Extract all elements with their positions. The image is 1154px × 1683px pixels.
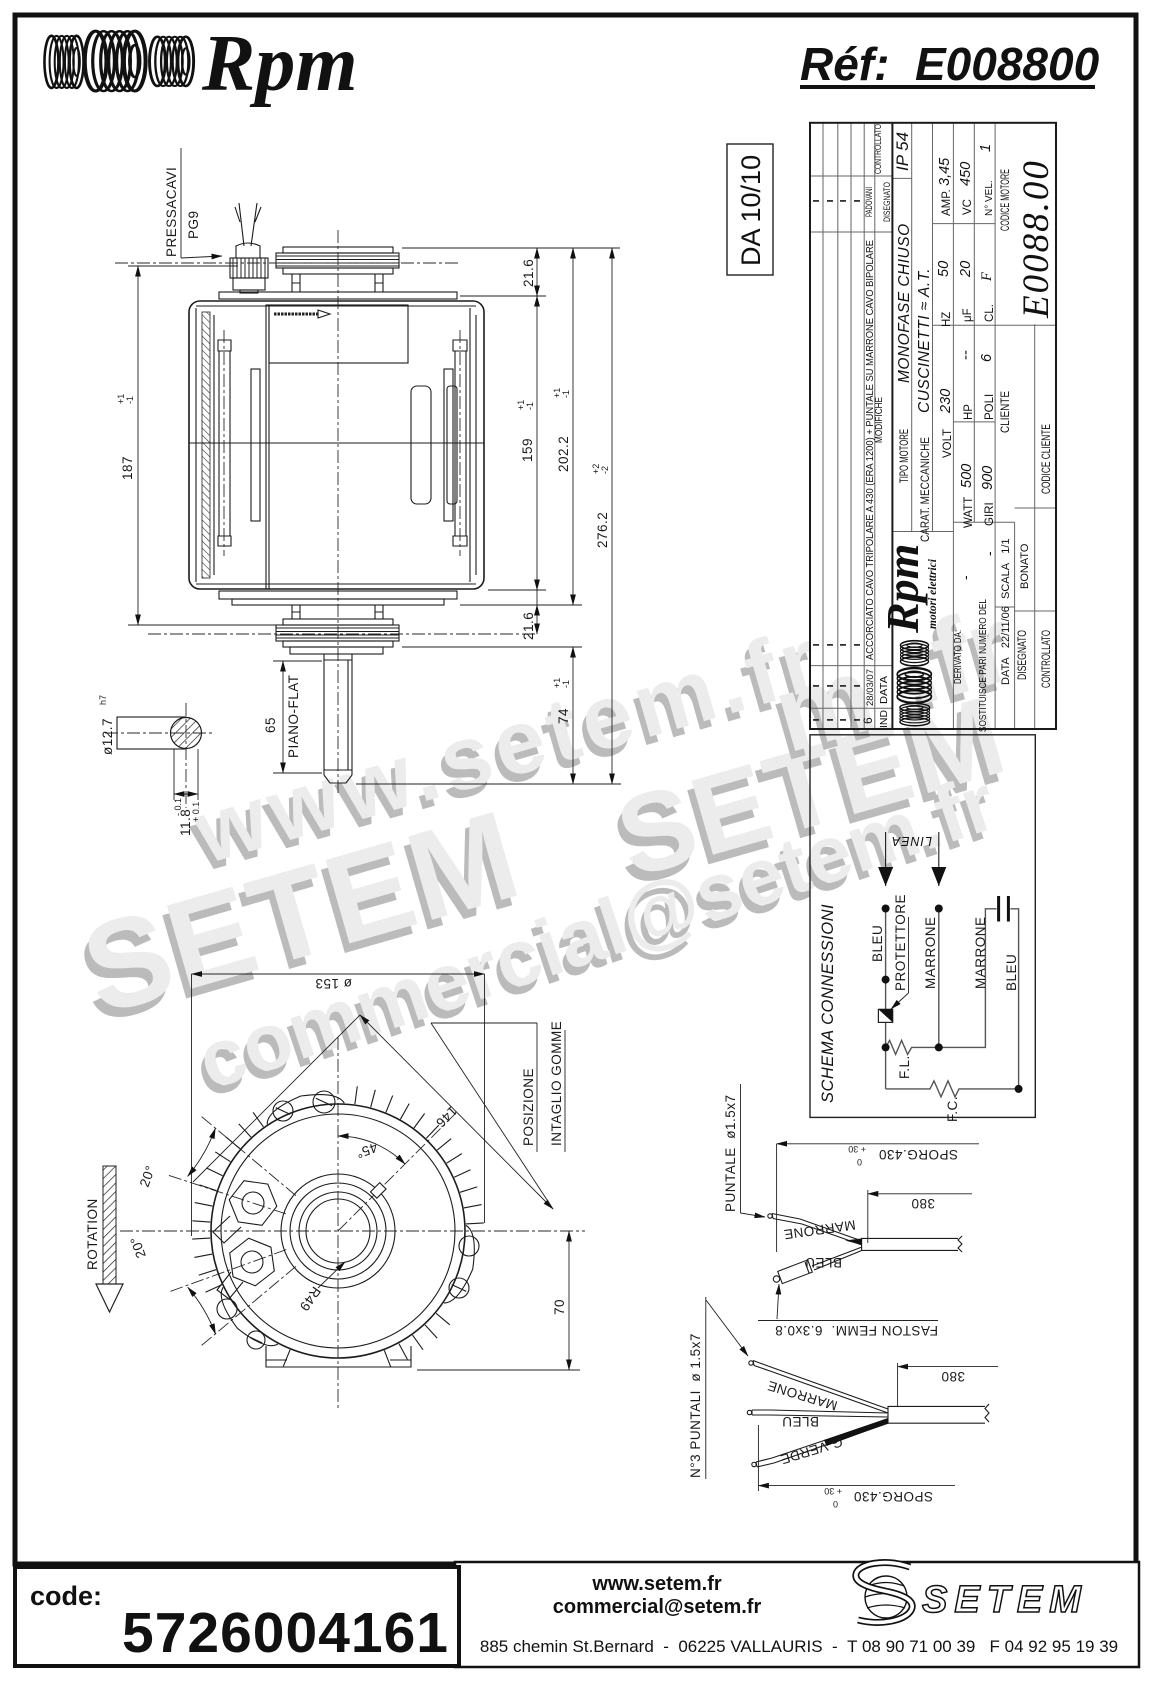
svg-text:885 chemin St.Bernard - 0622: 885 chemin St.Bernard - 06225 VALLAURIS … [480, 1637, 1118, 1656]
svg-text:commercial@setem.fr: commercial@setem.fr [553, 1596, 762, 1618]
svg-text:IND: IND [878, 710, 890, 728]
svg-text:-1: -1 [125, 396, 135, 404]
svg-text:DATA 22/11/06: DATA 22/11/06 [1000, 606, 1012, 685]
svg-text:0: 0 [833, 1499, 838, 1509]
svg-text:BLEU: BLEU [1004, 954, 1019, 991]
svg-text:PUNTALE ø1.5x7: PUNTALE ø1.5x7 [723, 1094, 738, 1212]
svg-text:3,45: 3,45 [937, 157, 953, 186]
svg-text:SPORG.430: SPORG.430 [853, 1489, 933, 1504]
svg-text:SOSTITUISCE PARI NUMERO DEL: SOSTITUISCE PARI NUMERO DEL [978, 599, 989, 732]
svg-text:SCHEMA CONNESSIONI: SCHEMA CONNESSIONI [819, 904, 837, 1103]
svg-text:+ 30: + 30 [848, 1144, 866, 1154]
svg-text:380: 380 [941, 1369, 965, 1384]
svg-text:INTAGLIO GOMME: INTAGLIO GOMME [549, 1021, 564, 1146]
svg-text:ACCORCIATO CAVO TRIPOLARE A 43: ACCORCIATO CAVO TRIPOLARE A 430 (ERA 120… [865, 240, 876, 660]
svg-text:MONOFASE CHIUSO: MONOFASE CHIUSO [896, 223, 913, 383]
svg-text:DA 10/10: DA 10/10 [736, 155, 766, 266]
svg-text:ROTATION: ROTATION [85, 1198, 100, 1270]
svg-text:CARAT. MECCANICHE: CARAT. MECCANICHE [920, 437, 932, 542]
svg-text:65: 65 [263, 717, 278, 733]
svg-text:PADOVANI: PADOVANI [864, 187, 874, 217]
svg-text:code:: code: [30, 1581, 102, 1611]
svg-text:-: - [981, 551, 997, 556]
svg-text:50: 50 [936, 261, 952, 277]
svg-text:AMP.: AMP. [941, 189, 953, 216]
svg-text:BONATO: BONATO [1019, 543, 1031, 589]
svg-text:CL.: CL. [984, 304, 996, 322]
svg-text:PIANO-FLAT: PIANO-FLAT [286, 674, 301, 758]
svg-text:159: 159 [520, 438, 535, 462]
svg-text:+ 30: + 30 [824, 1486, 842, 1496]
svg-text:5726004161: 5726004161 [122, 1601, 449, 1665]
svg-text:TIPO MOTORE: TIPO MOTORE [899, 429, 911, 483]
svg-text:DISEGNATO: DISEGNATO [882, 182, 892, 222]
svg-text:motori elettrici: motori elettrici [927, 558, 939, 629]
svg-text:MARRONE: MARRONE [923, 916, 938, 989]
svg-text:CONTROLLATO: CONTROLLATO [873, 124, 883, 174]
svg-text:N°3 PUNTALI ø 1.5x7: N°3 PUNTALI ø 1.5x7 [688, 1333, 703, 1478]
svg-text:PROTETTORE: PROTETTORE [893, 894, 908, 991]
svg-text:0: 0 [857, 1157, 862, 1167]
svg-text:F.L.: F.L. [897, 1055, 912, 1079]
svg-text:+ 0.1: + 0.1 [191, 802, 201, 822]
svg-text:IP 54: IP 54 [893, 132, 912, 171]
svg-text:GIRI: GIRI [984, 502, 996, 526]
svg-text:202.2: 202.2 [556, 436, 571, 472]
svg-text:BLEU: BLEU [870, 925, 885, 962]
svg-text:900: 900 [980, 466, 996, 490]
svg-text:PG9: PG9 [186, 210, 201, 239]
svg-text:SCALA 1/1: SCALA 1/1 [1000, 538, 1012, 599]
svg-text:N° VEL.: N° VEL. [984, 180, 995, 216]
svg-text:PRESSACAVI: PRESSACAVI [164, 167, 179, 257]
svg-text:CODICE CLIENTE: CODICE CLIENTE [1041, 424, 1053, 494]
svg-text:h7: h7 [98, 695, 108, 705]
svg-text:1: 1 [978, 144, 994, 152]
svg-text:POLI: POLI [984, 394, 996, 420]
svg-text:DISEGNATO: DISEGNATO [1017, 630, 1029, 680]
svg-text:500: 500 [959, 464, 975, 488]
svg-text:Réf: E008800: Réf: E008800 [800, 38, 1100, 90]
svg-text:70: 70 [552, 1299, 567, 1315]
svg-text:MODIFICHE: MODIFICHE [874, 397, 885, 443]
svg-text:74: 74 [556, 708, 571, 724]
svg-text:DERIVATO DA:: DERIVATO DA: [952, 630, 964, 684]
svg-text:DATA: DATA [878, 676, 890, 704]
svg-text:- 0.1: - 0.1 [173, 798, 183, 816]
svg-text:-1: -1 [525, 402, 535, 410]
svg-text:--: -- [957, 350, 974, 360]
svg-text:MARRONE: MARRONE [973, 916, 988, 989]
svg-text:BLEU: BLEU [782, 1414, 819, 1429]
svg-text:21.6: 21.6 [521, 259, 536, 287]
svg-text:LINEA: LINEA [891, 834, 932, 848]
svg-text:VOLT: VOLT [942, 429, 954, 458]
svg-text:F.C.: F.C. [945, 1096, 960, 1122]
svg-text:F: F [979, 272, 995, 282]
svg-text:ø12.7: ø12.7 [100, 718, 115, 755]
svg-text:187: 187 [120, 456, 135, 480]
svg-text:CUSCINETTI ≈ A.T.: CUSCINETTI ≈ A.T. [916, 268, 933, 413]
svg-text:21.6: 21.6 [521, 612, 536, 640]
svg-text:450: 450 [958, 162, 974, 186]
svg-text:230: 230 [938, 389, 954, 414]
svg-text:BLEU: BLEU [805, 1255, 842, 1270]
svg-text:FASTON FEMM. 6.3x0.8: FASTON FEMM. 6.3x0.8 [775, 1323, 938, 1338]
svg-text:HP: HP [963, 404, 975, 420]
svg-text:-1: -1 [561, 390, 571, 398]
svg-text:SPORG.430: SPORG.430 [878, 1147, 958, 1162]
svg-text:CONTROLLATO: CONTROLLATO [1041, 630, 1053, 688]
svg-text:ø 153: ø 153 [315, 976, 352, 991]
svg-text:CODICE MOTORE: CODICE MOTORE [1000, 169, 1012, 231]
svg-text:Rpm: Rpm [201, 20, 358, 108]
svg-text:Rpm: Rpm [877, 544, 928, 634]
svg-text:μF: μF [962, 308, 974, 322]
svg-text:CLIENTE: CLIENTE [1000, 391, 1012, 433]
svg-text:VC: VC [962, 199, 974, 215]
svg-text:E0088.00: E0088.00 [1016, 159, 1057, 319]
svg-text:www.setem.fr: www.setem.fr [591, 1573, 722, 1595]
svg-text:6: 6 [979, 353, 995, 362]
svg-text:POSIZIONE: POSIZIONE [521, 1068, 536, 1146]
svg-text:276.2: 276.2 [595, 512, 610, 548]
svg-text:WATT: WATT [963, 497, 975, 528]
svg-text:-1: -1 [561, 680, 571, 688]
svg-text:-: - [957, 575, 973, 580]
svg-text:20: 20 [958, 261, 974, 278]
svg-text:-2: -2 [600, 466, 610, 474]
svg-text:HZ: HZ [941, 312, 953, 327]
svg-text:6: 6 [861, 717, 875, 724]
svg-text:SETEM: SETEM [922, 1579, 1088, 1621]
svg-text:380: 380 [911, 1196, 935, 1211]
svg-text:28/03/07: 28/03/07 [865, 669, 875, 706]
